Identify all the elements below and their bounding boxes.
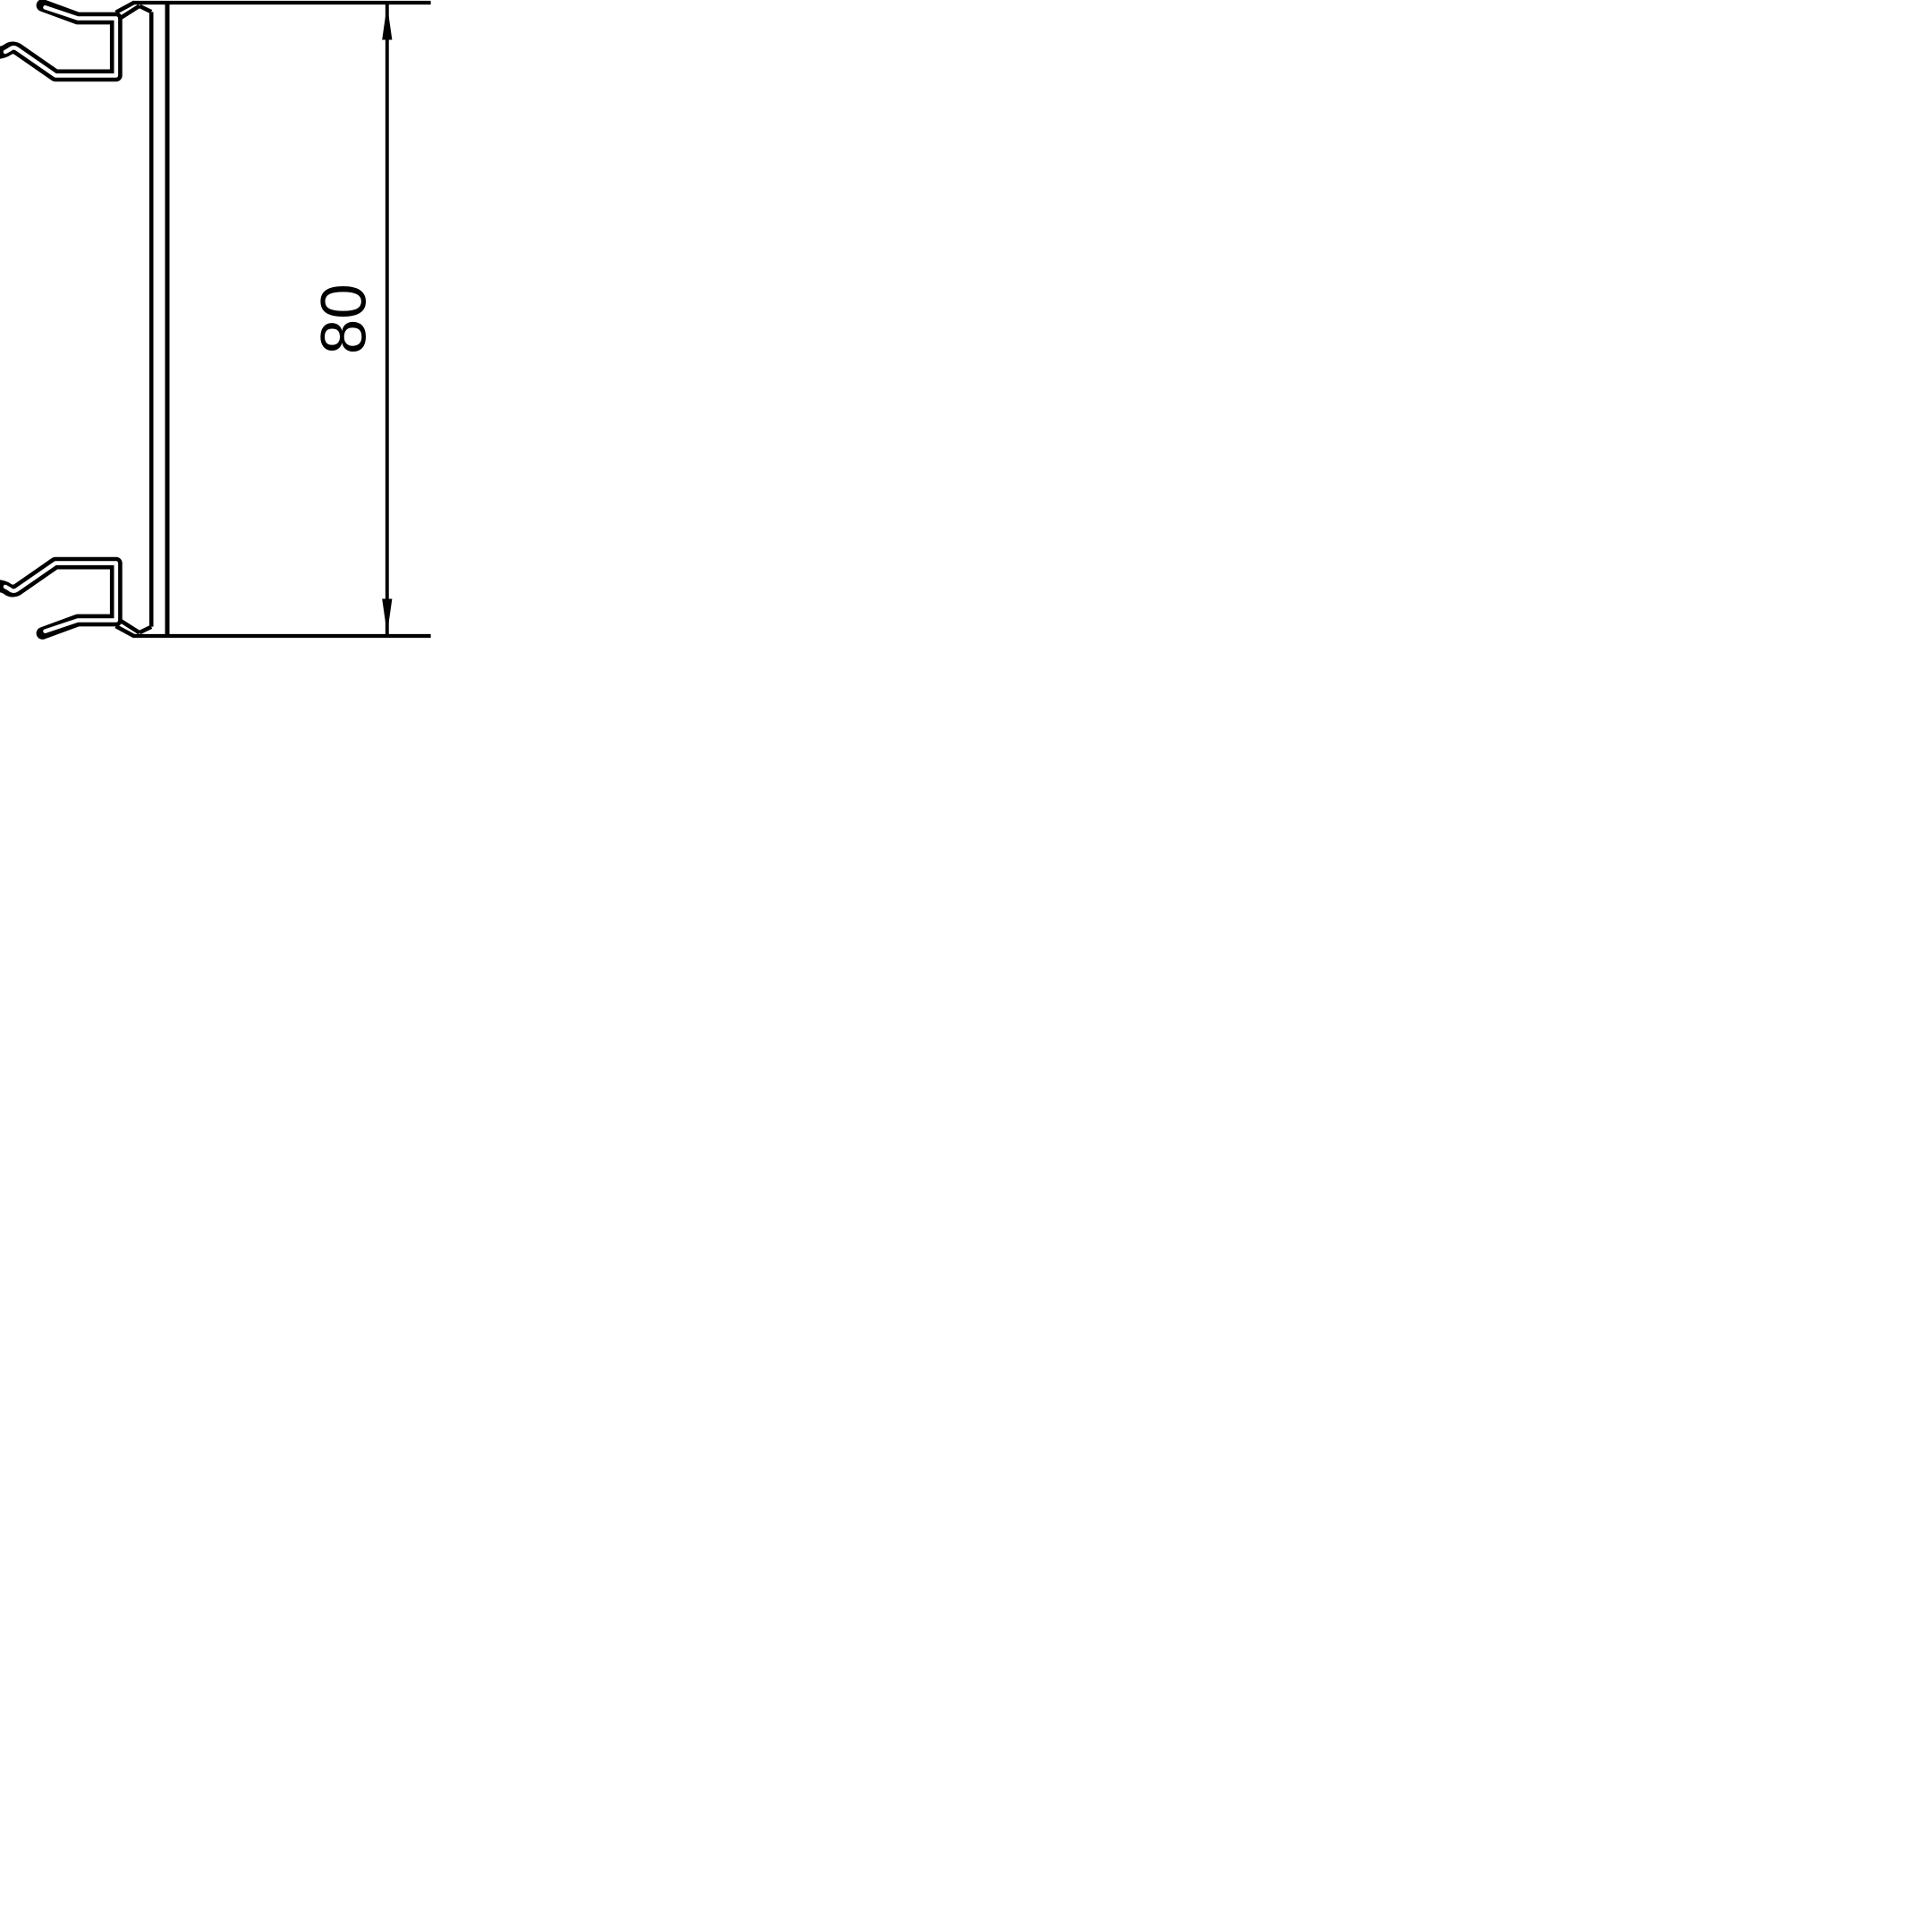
- svg-text:80: 80: [309, 284, 380, 354]
